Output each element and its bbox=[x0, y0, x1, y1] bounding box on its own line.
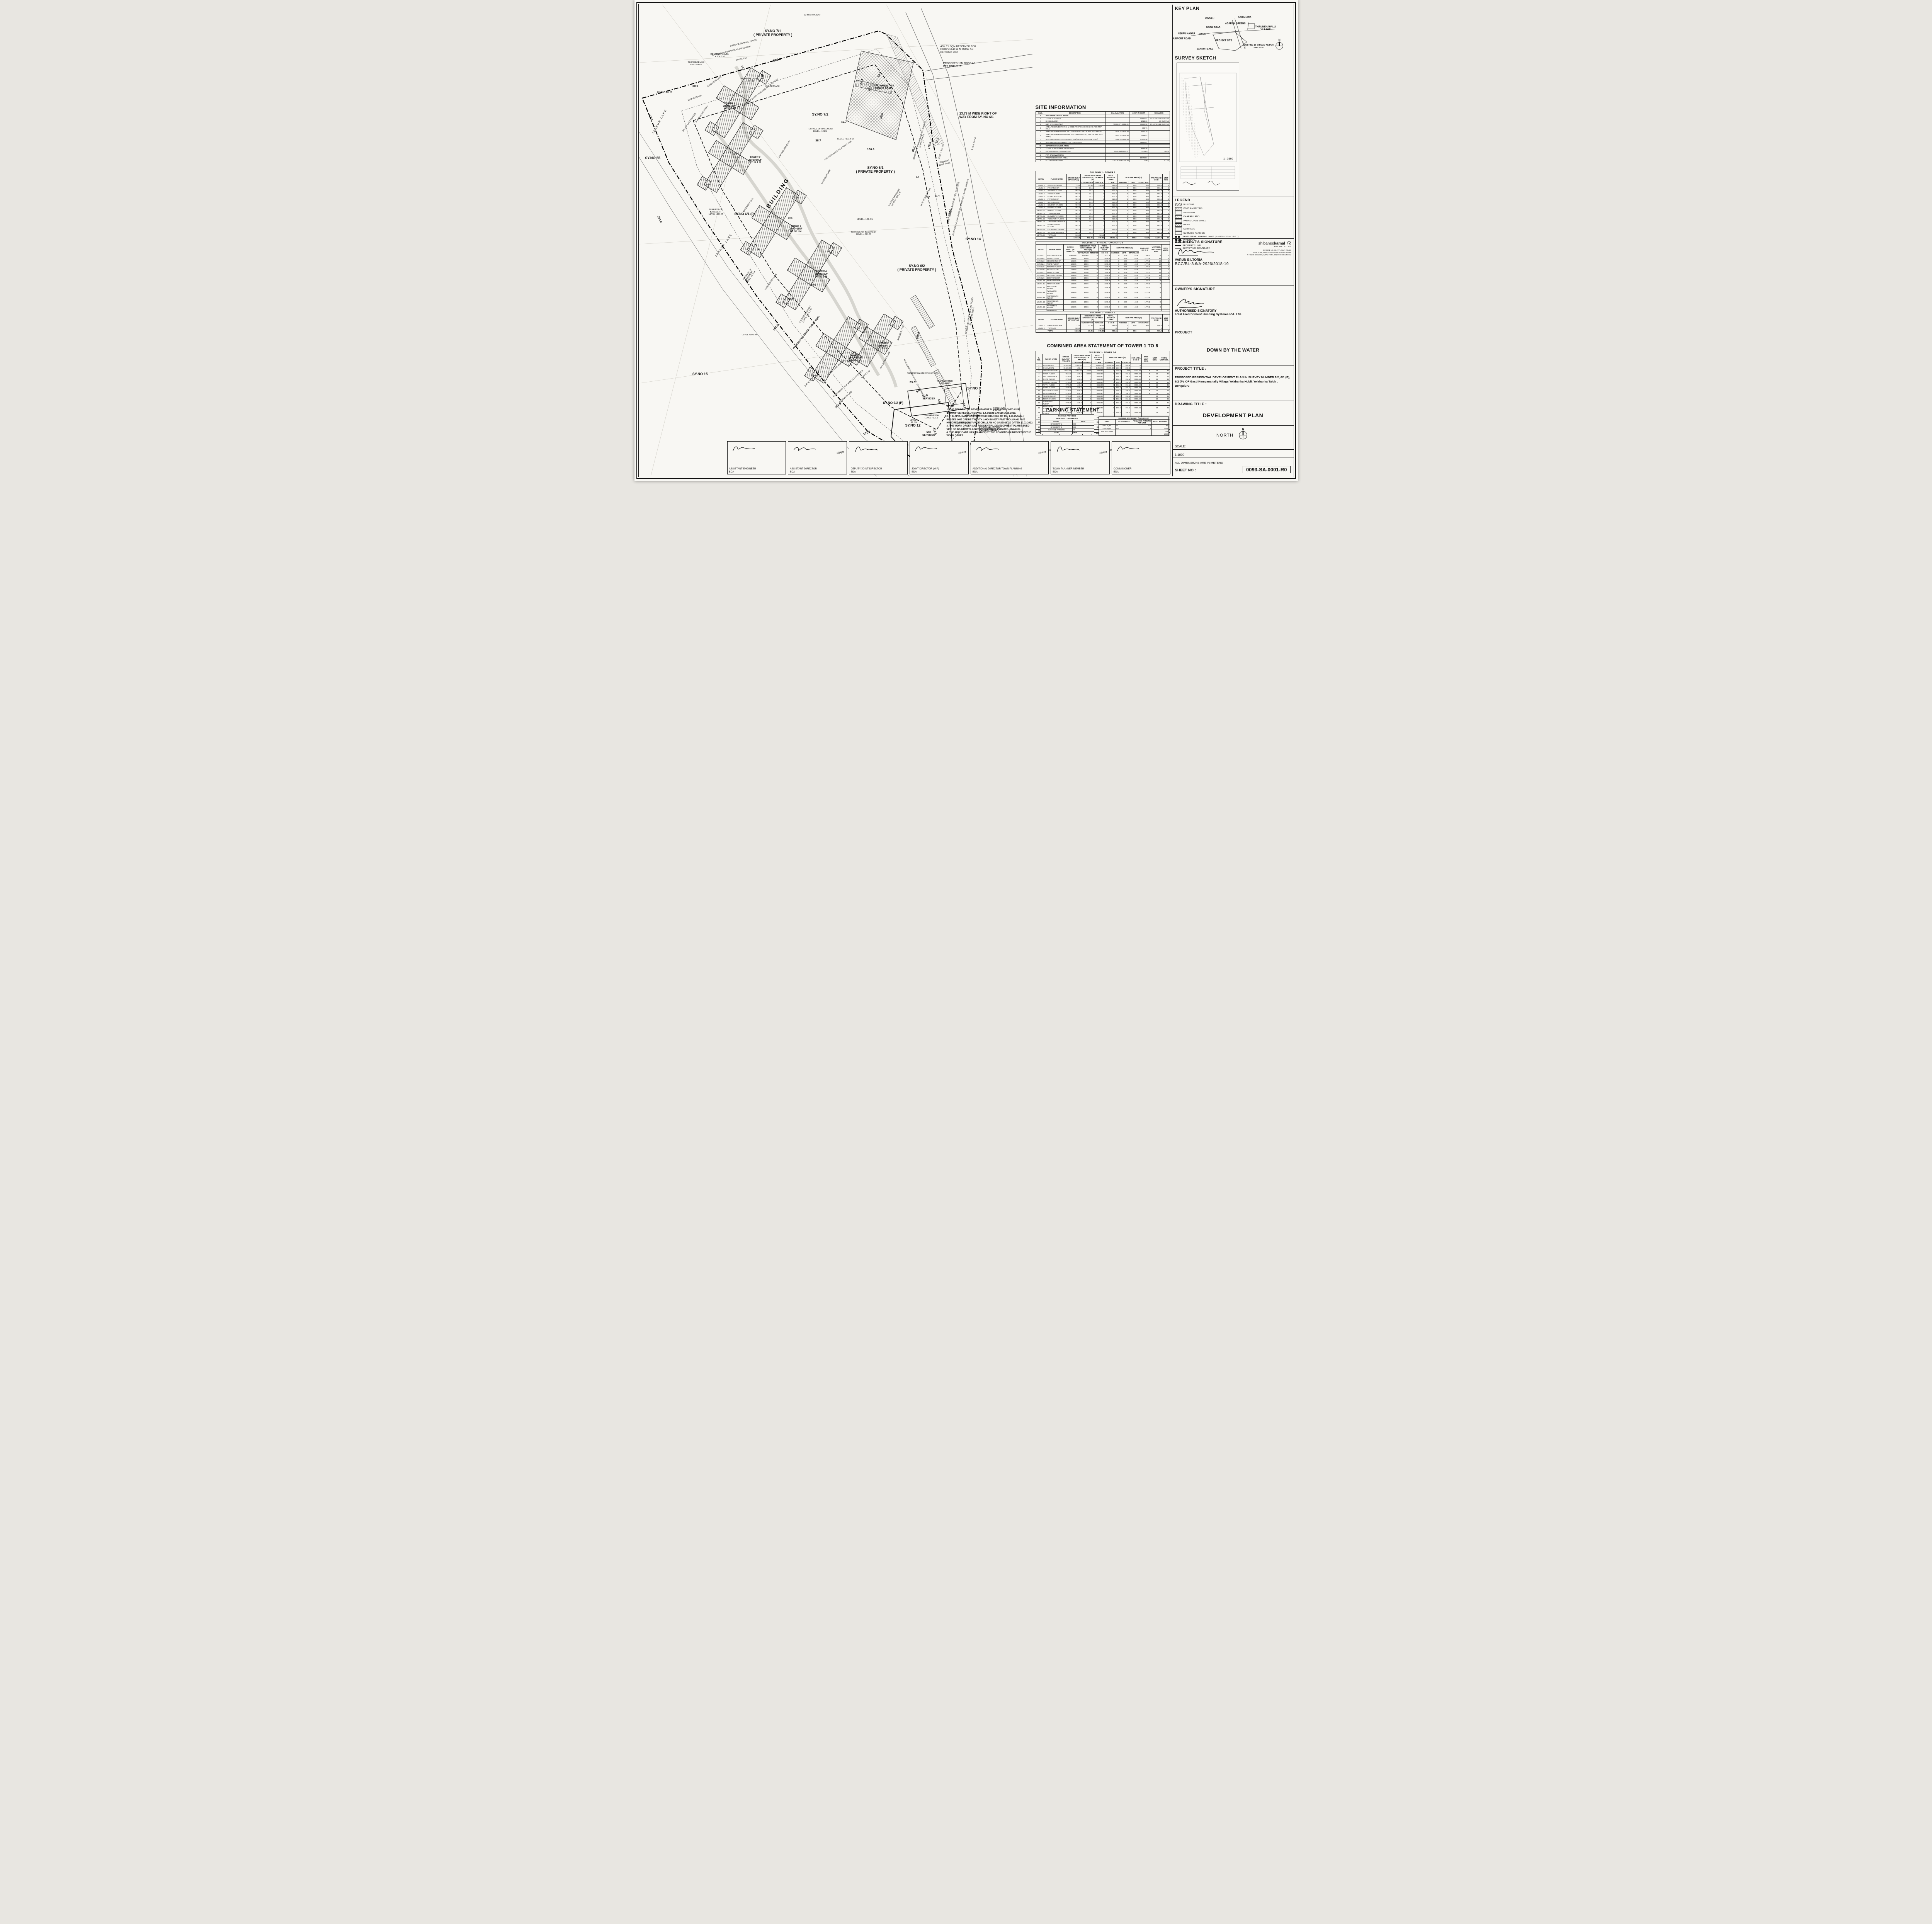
plan-label: EWS bbox=[733, 154, 737, 156]
table-row: 0-50 SQM.720.536 bbox=[1099, 424, 1168, 427]
title-block-column: KEY PLAN bbox=[1172, 5, 1294, 476]
legend-label: BANDI DAARI KHARAB LAND (6 + 0.5 + 3.5 =… bbox=[1183, 236, 1239, 238]
legend-swatch-plain bbox=[1175, 211, 1182, 214]
column-header: TOTAL BUILT UP AREA bbox=[1099, 245, 1111, 252]
survey-sketch-scale: 1 : 3960 bbox=[1223, 158, 1233, 160]
approval-date: 15|4|24 bbox=[1099, 451, 1107, 455]
column-header: LIFT bbox=[1129, 181, 1137, 184]
column-header: FLOOR NAME bbox=[1047, 314, 1066, 324]
legend-item: BANDI DAARI KHARAB LAND (6 + 0.5 + 3.5 =… bbox=[1175, 236, 1291, 238]
column-header: GROSS BUILT UP AREA (A) bbox=[1066, 174, 1081, 184]
legend-label: BUILDING bbox=[1184, 204, 1194, 206]
column-header: C = A-B bbox=[1105, 321, 1117, 324]
column-header: C = A-B bbox=[1105, 181, 1117, 184]
plan-label: 38.7 bbox=[815, 139, 821, 142]
plan-label: 42.7 bbox=[841, 121, 847, 124]
column-header: PARKING bbox=[1111, 252, 1120, 254]
table-row: LEVEL 7SIXTH FLOOR1959.5103.601855.9040.… bbox=[1036, 271, 1170, 274]
column-header: STAIRCASE bbox=[1137, 321, 1150, 324]
legend-swatch-dash-bold bbox=[1175, 236, 1181, 238]
table-total-row: TOTAL1645 bbox=[1040, 431, 1094, 434]
table-row: 1PROPOSED FLOOR AREA134739.6 bbox=[1036, 156, 1170, 159]
table-row: LEVEL 8SEVENTH FLOOR957.434.10923.3030.6… bbox=[1036, 204, 1170, 206]
architect-firm-sub: ARCHITECTS bbox=[1233, 246, 1291, 248]
plan-label: 11.4 bbox=[935, 194, 939, 197]
table-row: LEVEL 9EIGHTH FLOOR957.434.10923.3030.63… bbox=[1036, 206, 1170, 209]
legend-label: CIVIC AMENITIES bbox=[1184, 207, 1202, 210]
plan-label: BASEMENT LINE bbox=[897, 324, 905, 341]
legend-swatch-hatch-light bbox=[1175, 207, 1182, 211]
table-row: LEVEL 1GROUND FLOOR773.537.35146.55589.6… bbox=[1036, 324, 1170, 327]
table-row: LEVEL 14THIRTEENTH FLOOR1959.5103.601855… bbox=[1036, 295, 1170, 300]
plan-label: 2.9 bbox=[916, 175, 919, 178]
legend-item: DRIVEWAY bbox=[1175, 211, 1291, 214]
column-header: S. NO. bbox=[1036, 354, 1042, 364]
table-row: LEVEL 12ELEVENTH FLOOR957.434.10923.3030… bbox=[1036, 215, 1170, 218]
plan-label: SERVICES bbox=[922, 397, 935, 400]
column-header: AREA bbox=[1099, 420, 1115, 425]
table-row: LEVEL 13TWELVETH FLOOR957.434.10923.3030… bbox=[1036, 218, 1170, 220]
table-row: BASEMENT 2800 bbox=[1040, 426, 1094, 428]
plan-label: TOWER 4 2B+G+16UF HT. 52.1 M bbox=[815, 270, 828, 278]
sheet-no-panel: SHEET NO : 0093-SA-0001-R0 bbox=[1173, 465, 1294, 476]
table-row: 2FLOOR AREA RATIO134739.60/67370.381.99<… bbox=[1036, 159, 1170, 162]
plan-label: JAKKUR LAKE bbox=[651, 109, 667, 135]
table-row: 7SITE AREA FOR FAR CALCULATION ( 95% OF … bbox=[1036, 138, 1170, 141]
column-header: GROSS BUILT UP AREA (A) bbox=[1060, 354, 1071, 364]
parking-required-table: PARKING STATEMENT (REQUIRED)AREANO. OF U… bbox=[1099, 416, 1169, 436]
plan-label: 16 M SETBACK LINE bbox=[879, 351, 891, 370]
site-information-title: SITE INFORMATION bbox=[1036, 104, 1086, 110]
column-header: TOTAL BUILT UP AREA bbox=[1092, 354, 1104, 361]
plan-label: 101.8 bbox=[863, 430, 871, 436]
table-row: BCOVERAGE CALCULATION bbox=[1036, 144, 1170, 147]
architect-registration: BCC/BL-3.6/A-2926/2018-19 bbox=[1175, 262, 1291, 266]
plan-label: LEVEL +99.5 M bbox=[742, 334, 757, 336]
scale-heading: SCALE: bbox=[1175, 445, 1186, 448]
plan-label: SY.NO 14 bbox=[966, 237, 981, 241]
plan-label: SY.NO 7/2 bbox=[812, 112, 828, 116]
table-title: BUILDING 1 - TYPICAL TOWER 2 TO 5 bbox=[1036, 241, 1170, 245]
column-header: STAIRCASE bbox=[1128, 252, 1139, 254]
key-plan-label: NEHRU NAGAR bbox=[1178, 32, 1195, 35]
plan-label: SY.NO 7/1 ( PRIVATE PROPERTY ) bbox=[753, 29, 793, 37]
sheet-no-heading: SHEET NO : bbox=[1175, 468, 1196, 473]
dimensions-note-panel: ALL DIMENSIONS ARE IN METERS bbox=[1173, 457, 1294, 465]
owner-company: Total Environment Building Systems Pvt. … bbox=[1175, 313, 1291, 316]
table-row: 7FOURTH FLOOR8795.4448.508346.900194.219… bbox=[1036, 381, 1170, 384]
plan-label: SY.NO 12 bbox=[905, 423, 921, 427]
plan-label: JAKKUR LAKE bbox=[714, 233, 733, 258]
legend-item: PARKS/OPEN SPACE bbox=[1175, 219, 1291, 223]
table-title: BUILDING 1 - TOWER 1 bbox=[1036, 171, 1170, 174]
plan-label: JAKKUR LAKE bbox=[804, 365, 825, 388]
table-row: 2KHARAB AREA1012.3110 GUNTAS bbox=[1036, 120, 1170, 122]
table-row: LEVEL 12ELEVENTH FLOOR1959.5103.601855.9… bbox=[1036, 285, 1170, 290]
table-total-row: TOTAL16940.8582.95995.4515362.40520.2544… bbox=[1036, 236, 1170, 239]
approval-box-additional-director-town-planning: 15.4.24ADDITIONAL DIRECTOR TOWN PLANNING… bbox=[971, 441, 1049, 474]
plan-label: TOWER 2 2B+G+16UF HT. 52.1 M bbox=[748, 156, 762, 164]
table-row: LEVEL 6FIFTH FLOOR957.434.10923.3030.630… bbox=[1036, 198, 1170, 201]
key-plan-label: ADARSH GREENS bbox=[1225, 22, 1246, 25]
column-header: NON FAR AREA (D) bbox=[1117, 314, 1150, 321]
table-row: 10% VISITORS124 bbox=[1099, 430, 1168, 433]
note-line: 4. THE APPLICANT HAS TO ABIDE BY THE CON… bbox=[947, 431, 1035, 438]
plan-label: BASEMENT LINE bbox=[707, 76, 722, 88]
column-header: GROSS BUILT UP AREA (A) bbox=[1064, 245, 1077, 254]
legend-item: SERVICES bbox=[1175, 228, 1291, 231]
owner-panel: OWNER'S SIGNATURE AUTHORISED SIGNATORY T… bbox=[1173, 286, 1294, 329]
column-header: AREA IN SQMT. bbox=[1129, 112, 1148, 114]
plan-label: 6.7 bbox=[927, 195, 930, 198]
legend-title: LEGEND bbox=[1175, 198, 1291, 202]
column-header: PARKING PROVIDED bbox=[1040, 415, 1094, 417]
plan-label: TOWER 6 2B+GUF HT. 4.1 M bbox=[877, 342, 888, 350]
plan-label: CIVIC AMENITIES 3550.18 SQM. bbox=[872, 84, 894, 90]
plan-label: >16M SETBACK CHECK POINT LINE bbox=[824, 141, 852, 161]
column-header: STAIRCASE bbox=[1121, 361, 1131, 364]
key-plan-label: AGRAHARA bbox=[1238, 16, 1252, 19]
key-plan-label: KOGILU bbox=[1205, 17, 1214, 20]
plan-label: 13.73 M WIDE RIGHT OF WAY FROM SY. NO 6/… bbox=[959, 112, 997, 119]
table-row: 8SITE AREA CONSIDERED FOR COVERAGE66961.… bbox=[1036, 141, 1170, 144]
column-header: TOTAL PARKING bbox=[1152, 420, 1168, 425]
building1-tower1-table: BUILDING 1 - TOWER 1LEVELFLOOR NAMEGROSS… bbox=[1036, 171, 1170, 240]
table-row: LEVEL 9EIGHTH FLOOR1959.5103.601855.9040… bbox=[1036, 277, 1170, 279]
table-row: LEVEL 6FIFTH FLOOR1959.5103.601855.9040.… bbox=[1036, 268, 1170, 271]
plan-label: 9.5 bbox=[937, 398, 941, 403]
plan-label: BASEMENT LINE bbox=[839, 391, 853, 403]
table-row: LEVEL 1GROUND FLOOR2099.865421.96501677.… bbox=[1036, 254, 1170, 257]
legend-item: SURFACE PARKING bbox=[1175, 231, 1291, 235]
table-row: LEVEL 4THIRD FLOOR1959.5103.601855.9040.… bbox=[1036, 263, 1170, 265]
plan-label: 14.0 bbox=[740, 65, 744, 71]
approval-signature bbox=[1054, 444, 1081, 454]
table-row: 13TENTH FLOOR8795.4448.508346.900194.219… bbox=[1036, 398, 1170, 400]
project-title-heading: PROJECT TITLE : bbox=[1175, 367, 1291, 371]
approval-box-town-planner-member: 15|4|24TOWN PLANNER MEMBERBDA bbox=[1051, 441, 1110, 474]
approval-box-assistant-director: 12|4|24ASSISTANT DIRECTORBDA bbox=[788, 441, 847, 474]
column-header: DEDUCTION FROM GROSS BUILT UP AREA (B) bbox=[1072, 354, 1092, 361]
table-row: LEVEL 2FIRST FLOOR957.434.10923.3030.630… bbox=[1036, 187, 1170, 189]
legend-swatch-hatch-thin bbox=[1175, 215, 1182, 219]
plan-label: 8 M FIRE DRIVEWAY LEVEL + 101.1 M bbox=[888, 188, 902, 208]
table-row: 5AREA RESERVED FOR CIVIC AMENITIES ( 5% … bbox=[1036, 130, 1170, 133]
plan-label: TOWARDS JAKKURU MAIN ROAD EX- 18.0 M ROA… bbox=[965, 297, 977, 335]
column-header: EWS UNITS bbox=[1162, 245, 1170, 254]
plan-label: 12M DRIVEWAY LEVEL +100.1 bbox=[923, 415, 939, 419]
column-header: NOS. bbox=[1072, 420, 1094, 423]
plan-label: BUILDING bbox=[765, 177, 790, 209]
column-header: PARKING bbox=[1104, 361, 1115, 364]
key-plan-map: N KOGILUAGRAHARAADARSH GREENSGARG ROADTH… bbox=[1175, 12, 1291, 52]
dimensions-note: ALL DIMENSIONS ARE IN METERS bbox=[1175, 461, 1223, 464]
parking-provided-table: PARKING PROVIDEDBUILDING 1 - TOWER 1-6LE… bbox=[1040, 414, 1094, 434]
plan-label: TERRACE OF BASEMENT LEVEL +101 M bbox=[742, 268, 756, 284]
approval-org: BDA bbox=[851, 471, 906, 473]
north-label: NORTH bbox=[1216, 433, 1233, 438]
project-title-panel: PROJECT TITLE : PROPOSED RESIDENTIAL DEV… bbox=[1173, 365, 1294, 401]
legend-label: SURFACE PARKING bbox=[1184, 232, 1205, 235]
column-header: FAR AREA E = C-D bbox=[1150, 314, 1163, 324]
plan-label: RAMP DOWN 7.5 M WIDE 43.2 M LENGTH bbox=[712, 46, 751, 57]
table-row: 14ELEVENTH FLOOR8795.4448.508346.900194.… bbox=[1036, 400, 1170, 405]
owner-signatory: AUTHORISED SIGNATORY bbox=[1175, 309, 1291, 313]
north-compass-icon: N bbox=[1236, 428, 1250, 443]
plan-label: 8 M FIRE DRIVEWAY bbox=[778, 140, 791, 158]
key-plan-label: EXISTING 18 M ROAD AS PER RMP 2015 bbox=[1242, 44, 1275, 49]
legend-swatch-hatch bbox=[1175, 203, 1182, 206]
column-header: UNIT NOS. bbox=[1163, 314, 1170, 324]
legend-label: PARKS/OPEN SPACE bbox=[1184, 220, 1206, 222]
plan-label: 13 M DRIVEWAY bbox=[804, 14, 821, 16]
column-header: DESCRIPTION bbox=[1045, 112, 1105, 114]
legend-label: DRIVEWAY bbox=[1184, 212, 1196, 214]
survey-sketch-panel: SURVEY SKETCH bbox=[1173, 54, 1294, 197]
architect-firm-name: shibaneekamal ARCHITECTS bbox=[1233, 240, 1291, 248]
drawing-title-text: DEVELOPMENT PLAN bbox=[1175, 412, 1291, 418]
plan-label: 408 .71 SQM RESERVED FOR PROPOSED 18 M R… bbox=[940, 45, 976, 54]
legend-label: SERVICES bbox=[1184, 228, 1195, 230]
note-lines: 1. THE RESIDENTIAL DEVELOPMENT PLAN IS A… bbox=[947, 408, 1035, 437]
approval-box-joint-director-m-p-: 15.4.24JOINT DIRECTOR (M.P)BDA bbox=[910, 441, 969, 474]
key-plan-label: THIRUMENAHALLI VILLAGE bbox=[1255, 26, 1276, 31]
column-header: TOTAL BUILT UP AREA bbox=[1105, 314, 1117, 321]
plan-label: EWS bbox=[788, 218, 792, 220]
approval-signature bbox=[974, 444, 1001, 454]
table-row: LEVEL 4THIRD FLOOR957.434.10923.3030.630… bbox=[1036, 192, 1170, 195]
approval-title: ASSISTANT DIRECTOR bbox=[790, 467, 845, 471]
column-header: FLOOR NAME bbox=[1046, 245, 1064, 254]
key-plan-label: JAKKUR LAKE bbox=[1197, 48, 1213, 51]
column-header: FAR AREA E = C-D bbox=[1139, 245, 1151, 254]
plan-label: SY.NO 6/2 ( PRIVATE PROPERTY ) bbox=[897, 264, 936, 272]
approval-signature bbox=[852, 444, 879, 454]
plan-label: 172.6 bbox=[647, 113, 653, 121]
column-header: FAR AREA E = C-D bbox=[1131, 354, 1141, 364]
column-header: PARKING bbox=[1117, 321, 1129, 324]
column-header: CUTOUT/VOID bbox=[1077, 252, 1089, 254]
scale-value: 1:1000 bbox=[1175, 453, 1184, 457]
legend-item: RAMP bbox=[1175, 223, 1291, 227]
key-plan-label: AIRPORT ROAD bbox=[1173, 38, 1190, 41]
plan-label: TERRACE OF BASEMENT LEVEL + 101 M bbox=[851, 231, 876, 236]
column-header: CUTOUT/VOID bbox=[1081, 321, 1094, 324]
project-title-text: PROPOSED RESIDENTIAL DEVELOPMENT PLAN IN… bbox=[1175, 375, 1291, 388]
plan-label: TRANSFORMER & DG YARD bbox=[688, 61, 704, 66]
plan-label: 30.0 MT LAKE BUFFER bbox=[682, 113, 697, 133]
plan-label: 106.6 bbox=[867, 148, 874, 151]
sheet-no-value: 0093-SA-0001-R0 bbox=[1243, 466, 1291, 473]
table-row: LEVEL 10NINETH FLOOR1959.5103.601855.904… bbox=[1036, 279, 1170, 282]
plan-label: TOWER 3 2B+G+16UF HT. 52.1 M bbox=[789, 225, 802, 233]
table-row: 1TOTAL PLINTH AREA PROPOSED9946.46 bbox=[1036, 147, 1170, 150]
legend-swatch-plain bbox=[1175, 228, 1182, 231]
survey-sketch-drawing: 1 : 3960 bbox=[1177, 63, 1239, 190]
legend-item: BUILDING bbox=[1175, 203, 1291, 206]
plan-label: BANDIDAARI KHARAB LAND (3.5 GUNTAS) bbox=[903, 359, 923, 396]
plan-label: SC bbox=[942, 403, 945, 405]
plan-label: 178.6 bbox=[927, 142, 932, 150]
key-plan-label: GARG ROAD bbox=[1206, 27, 1220, 29]
survey-sketch-inset: 1 : 3960 bbox=[1177, 63, 1239, 191]
table-row: >150 SQM.60421208 bbox=[1099, 427, 1168, 430]
approval-date: 12|4|24 bbox=[837, 451, 844, 455]
table-row: LEVEL 18TERRACE848.9848.9000 bbox=[1036, 234, 1170, 236]
architect-signature bbox=[1175, 247, 1218, 257]
column-header: C = A-B bbox=[1099, 252, 1111, 254]
site-information-table: S.NO.DESCRIPTIONCALCULATIONAREA IN SQMT.… bbox=[1036, 111, 1170, 162]
column-header: UNIT NOS. bbox=[1151, 354, 1159, 364]
table-row: 2BASEMENT 231538.33482.6031055.7330285.3… bbox=[1036, 367, 1170, 369]
approval-date: 15.4.24 bbox=[1038, 451, 1046, 455]
architect-logo-icon bbox=[1286, 240, 1291, 245]
table-row: 11EIGHTH FLOOR8795.4448.508346.900194.21… bbox=[1036, 392, 1170, 395]
plan-label: LEVEL + 104.1 M bbox=[938, 144, 945, 160]
column-header: TERRACE bbox=[1089, 252, 1099, 254]
column-header: UNIT NOS. INCLUDING EWS bbox=[1151, 245, 1162, 254]
table-row: LEVEL 11TENTH FLOOR1959.5103.601855.9040… bbox=[1036, 282, 1170, 285]
column-header: C = A-B bbox=[1092, 361, 1104, 364]
plan-label: TRANSFORMER & DG YARD bbox=[937, 380, 953, 385]
table-row: LEVEL 3SECOND FLOOR957.434.10923.3030.63… bbox=[1036, 189, 1170, 192]
table-row: 2COVERAGE IN PERCENTAGE9946.46/66961.671… bbox=[1036, 150, 1170, 153]
table-row: CFAR CALCULATIONS bbox=[1036, 154, 1170, 156]
plan-label: SY.NO 6/1 ( PRIVATE PROPERTY ) bbox=[856, 166, 895, 173]
plan-label: TERRACE OF BASEMENT LEVEL +101 M bbox=[808, 128, 833, 133]
legend-swatch-plain bbox=[1175, 219, 1182, 223]
table-row: LEVEL 14THIRTEENTH FLOOR957.434.10923.30… bbox=[1036, 220, 1170, 223]
note-line: 3. THE WORK ORDER AND RESIDENTIAL DEVELO… bbox=[947, 425, 1035, 431]
plan-label: PARKS/OPEN SPACE 7149.81 SQM. bbox=[793, 315, 820, 350]
table-row: LEVEL 16FIFTEENTH FLOOR957.434.10923.303… bbox=[1036, 228, 1170, 231]
column-header: FAR AREA E = C-D bbox=[1150, 174, 1163, 184]
column-header: DEDUCTION FROM GROSS BUILT UP AREA (B) bbox=[1081, 174, 1105, 181]
table-row: ASITE AREA CALCULATION bbox=[1036, 114, 1170, 117]
approval-signature bbox=[1115, 444, 1142, 454]
table-row: LEVEL 2TERRACE848.9848.9000 bbox=[1036, 327, 1170, 330]
plan-label: SY.NO 6/1 (P) bbox=[735, 212, 755, 216]
parking-statement-title: PARKING STATEMENT bbox=[1046, 407, 1100, 413]
table-row: LEVEL 2FIRST FLOOR1959.5103.601855.9040.… bbox=[1036, 257, 1170, 260]
table-title: BUILDING 1 - TOWER 1-6 bbox=[1036, 351, 1170, 354]
column-header: PARKING STATEMENT (REQUIRED) bbox=[1099, 417, 1168, 420]
plan-label: TOWER 1 2B+G+16UF HT. 52.1 M bbox=[723, 103, 736, 110]
plan-label: 91.2 bbox=[935, 137, 939, 143]
plan-label: 305.0 bbox=[773, 58, 781, 63]
approval-title: DEPUTY/JOINT DIRECTOR bbox=[851, 467, 906, 471]
table-row: 9SIXTH FLOOR8795.4448.508346.900194.2194… bbox=[1036, 386, 1170, 389]
legend-item: CIVIC AMENITIES bbox=[1175, 207, 1291, 211]
approval-signature bbox=[913, 444, 940, 454]
drawing-title-heading: DRAWING TITLE : bbox=[1175, 402, 1291, 406]
combined-area-heading: COMBINED AREA STATEMENT OF TOWER 1 TO 6 bbox=[1036, 344, 1170, 348]
table-row: 6AREA RESERVED FOR PARK AND OPEN SPACE (… bbox=[1036, 133, 1170, 138]
approval-org: BDA bbox=[1114, 471, 1169, 473]
plan-label: STP SERVICES bbox=[922, 431, 935, 437]
note-line: 1. THE RESIDENTIAL DEVELOPMENT PLAN IS A… bbox=[947, 408, 1035, 415]
table-row: 5SECOND FLOOR8795.4448.508346.900194.219… bbox=[1036, 375, 1170, 378]
column-header: DEDUCTION FROM GROSS BUILT UP AREA (B) bbox=[1081, 314, 1105, 321]
table-row: LEVEL 11TENTH FLOOR957.434.10923.3030.63… bbox=[1036, 212, 1170, 215]
table-row: 1368 bbox=[1099, 433, 1168, 435]
drawing-title-panel: DRAWING TITLE : DEVELOPMENT PLAN bbox=[1173, 401, 1294, 426]
project-panel: PROJECT DOWN BY THE WATER bbox=[1173, 329, 1294, 365]
column-header: LIFT bbox=[1129, 321, 1137, 324]
plan-label: 16 M SETBACK bbox=[687, 94, 702, 102]
table-row: 4FIRST FLOOR9644.3448.5848.98346.900194.… bbox=[1036, 372, 1170, 375]
tables-column: SITE INFORMATION S.NO.DESCRIPTIONCALCULA… bbox=[1035, 5, 1171, 476]
column-header: CUTOUT/VOID bbox=[1072, 361, 1083, 364]
approval-org: BDA bbox=[729, 471, 784, 473]
project-name: DOWN BY THE WATER bbox=[1175, 347, 1291, 353]
development-plan-sheet: SY.NO 7/1 ( PRIVATE PROPERTY )305.0TRANS… bbox=[634, 0, 1298, 481]
column-header: NON FAR AREA (D) bbox=[1111, 245, 1139, 252]
column-header: LEVEL bbox=[1036, 314, 1047, 324]
architect-panel: ARCHITECT'S SIGNATURE shibaneekamal ARCH… bbox=[1173, 239, 1294, 286]
svg-text:N: N bbox=[1242, 428, 1244, 431]
table-row: LEVEL 16FIFTEENTH FLOOR1959.5103.601855.… bbox=[1036, 304, 1170, 309]
note-heading: NOTE: bbox=[947, 405, 1035, 408]
table-row: 3GROUND FLOOR9946.461762.56293.17890.800… bbox=[1036, 369, 1170, 372]
plan-label: 8 M FIRE DRIVEWAY bbox=[695, 105, 709, 123]
approval-org: BDA bbox=[912, 471, 967, 473]
column-header: NO. OF UNITS bbox=[1115, 420, 1132, 425]
approval-box-assistant-engineer: ASSISTANT ENGINEERBDA bbox=[727, 441, 786, 474]
plan-label: 201.4 bbox=[656, 215, 662, 223]
scale-label-panel: SCALE: bbox=[1173, 441, 1294, 450]
approval-title: COMMISIONER bbox=[1114, 467, 1169, 471]
plan-label: 26.0 bbox=[867, 85, 872, 92]
table-row: LEVEL 15FOURTEENTH FLOOR957.434.10923.30… bbox=[1036, 223, 1170, 228]
plan-label: TOWER 5 2B+G+16UF HT. 52.1 M bbox=[848, 355, 861, 362]
table-row: LEVEL 5FOURTH FLOOR957.434.10923.3030.63… bbox=[1036, 195, 1170, 198]
key-plan-panel: KEY PLAN bbox=[1173, 5, 1294, 54]
approval-box-commisioner: COMMISIONERBDA bbox=[1112, 441, 1171, 474]
plan-label: LEVEL +102.6 M bbox=[857, 218, 873, 220]
plan-label: SY.NO 6/2 (P) bbox=[883, 401, 903, 405]
column-header: PARKING bbox=[1117, 181, 1129, 184]
key-plan-title: KEY PLAN bbox=[1175, 6, 1291, 11]
table-row: 8FIFTH FLOOR8795.4448.508346.900194.2194… bbox=[1036, 384, 1170, 386]
plan-label: 168.4 bbox=[915, 332, 921, 340]
legend-label: KHARAB LAND bbox=[1184, 216, 1200, 218]
column-header: TERRACE bbox=[1094, 181, 1105, 184]
legend-label: RAMP bbox=[1184, 224, 1190, 226]
plan-label: 30.0 bbox=[692, 85, 698, 88]
legend-panel: LEGEND BUILDINGCIVIC AMENITIESDRIVEWAYKH… bbox=[1173, 197, 1294, 239]
plan-label: LEVEL +100 M bbox=[657, 91, 672, 93]
table-row: 1TOTAL SITE AREA71932.8717 ACRES 31 GUNT… bbox=[1036, 117, 1170, 120]
column-header: FLOOR NAME bbox=[1042, 354, 1060, 364]
plan-label: LEVEL + 99.5 M bbox=[910, 419, 918, 424]
table-row: LEVEL 13TWELVETH FLOOR1959.5103.601855.9… bbox=[1036, 290, 1170, 295]
column-header: UNIT NOS. bbox=[1163, 174, 1170, 184]
plan-label: TERRACE OF BASEMENT LEVEL +101 M bbox=[709, 209, 723, 216]
column-header: FLOOR NAME bbox=[1047, 174, 1066, 184]
approval-signature bbox=[791, 444, 818, 454]
table-row: LEVEL 8SEVENTH FLOOR1959.5103.601855.904… bbox=[1036, 274, 1170, 277]
table-row: LEVEL 10NINETH FLOOR957.434.10923.3030.6… bbox=[1036, 209, 1170, 212]
owner-signature bbox=[1175, 297, 1221, 307]
table-row: SURFACE PARKING45 bbox=[1040, 428, 1094, 431]
approvals-strip: ASSISTANT ENGINEERBDA12|4|24ASSISTANT DI… bbox=[727, 441, 1171, 474]
legend-swatch-plain bbox=[1175, 231, 1182, 235]
architect-firm-block: shibaneekamal ARCHITECTS IMAGINE NO. 78,… bbox=[1233, 240, 1291, 256]
key-plan-labels: KOGILUAGRAHARAADARSH GREENSGARG ROADTHIR… bbox=[1175, 12, 1291, 52]
table-row: 12NINETH FLOOR8795.4448.508346.900194.21… bbox=[1036, 395, 1170, 398]
column-header: REQUIRED PARKING PER UNIT bbox=[1132, 420, 1152, 425]
